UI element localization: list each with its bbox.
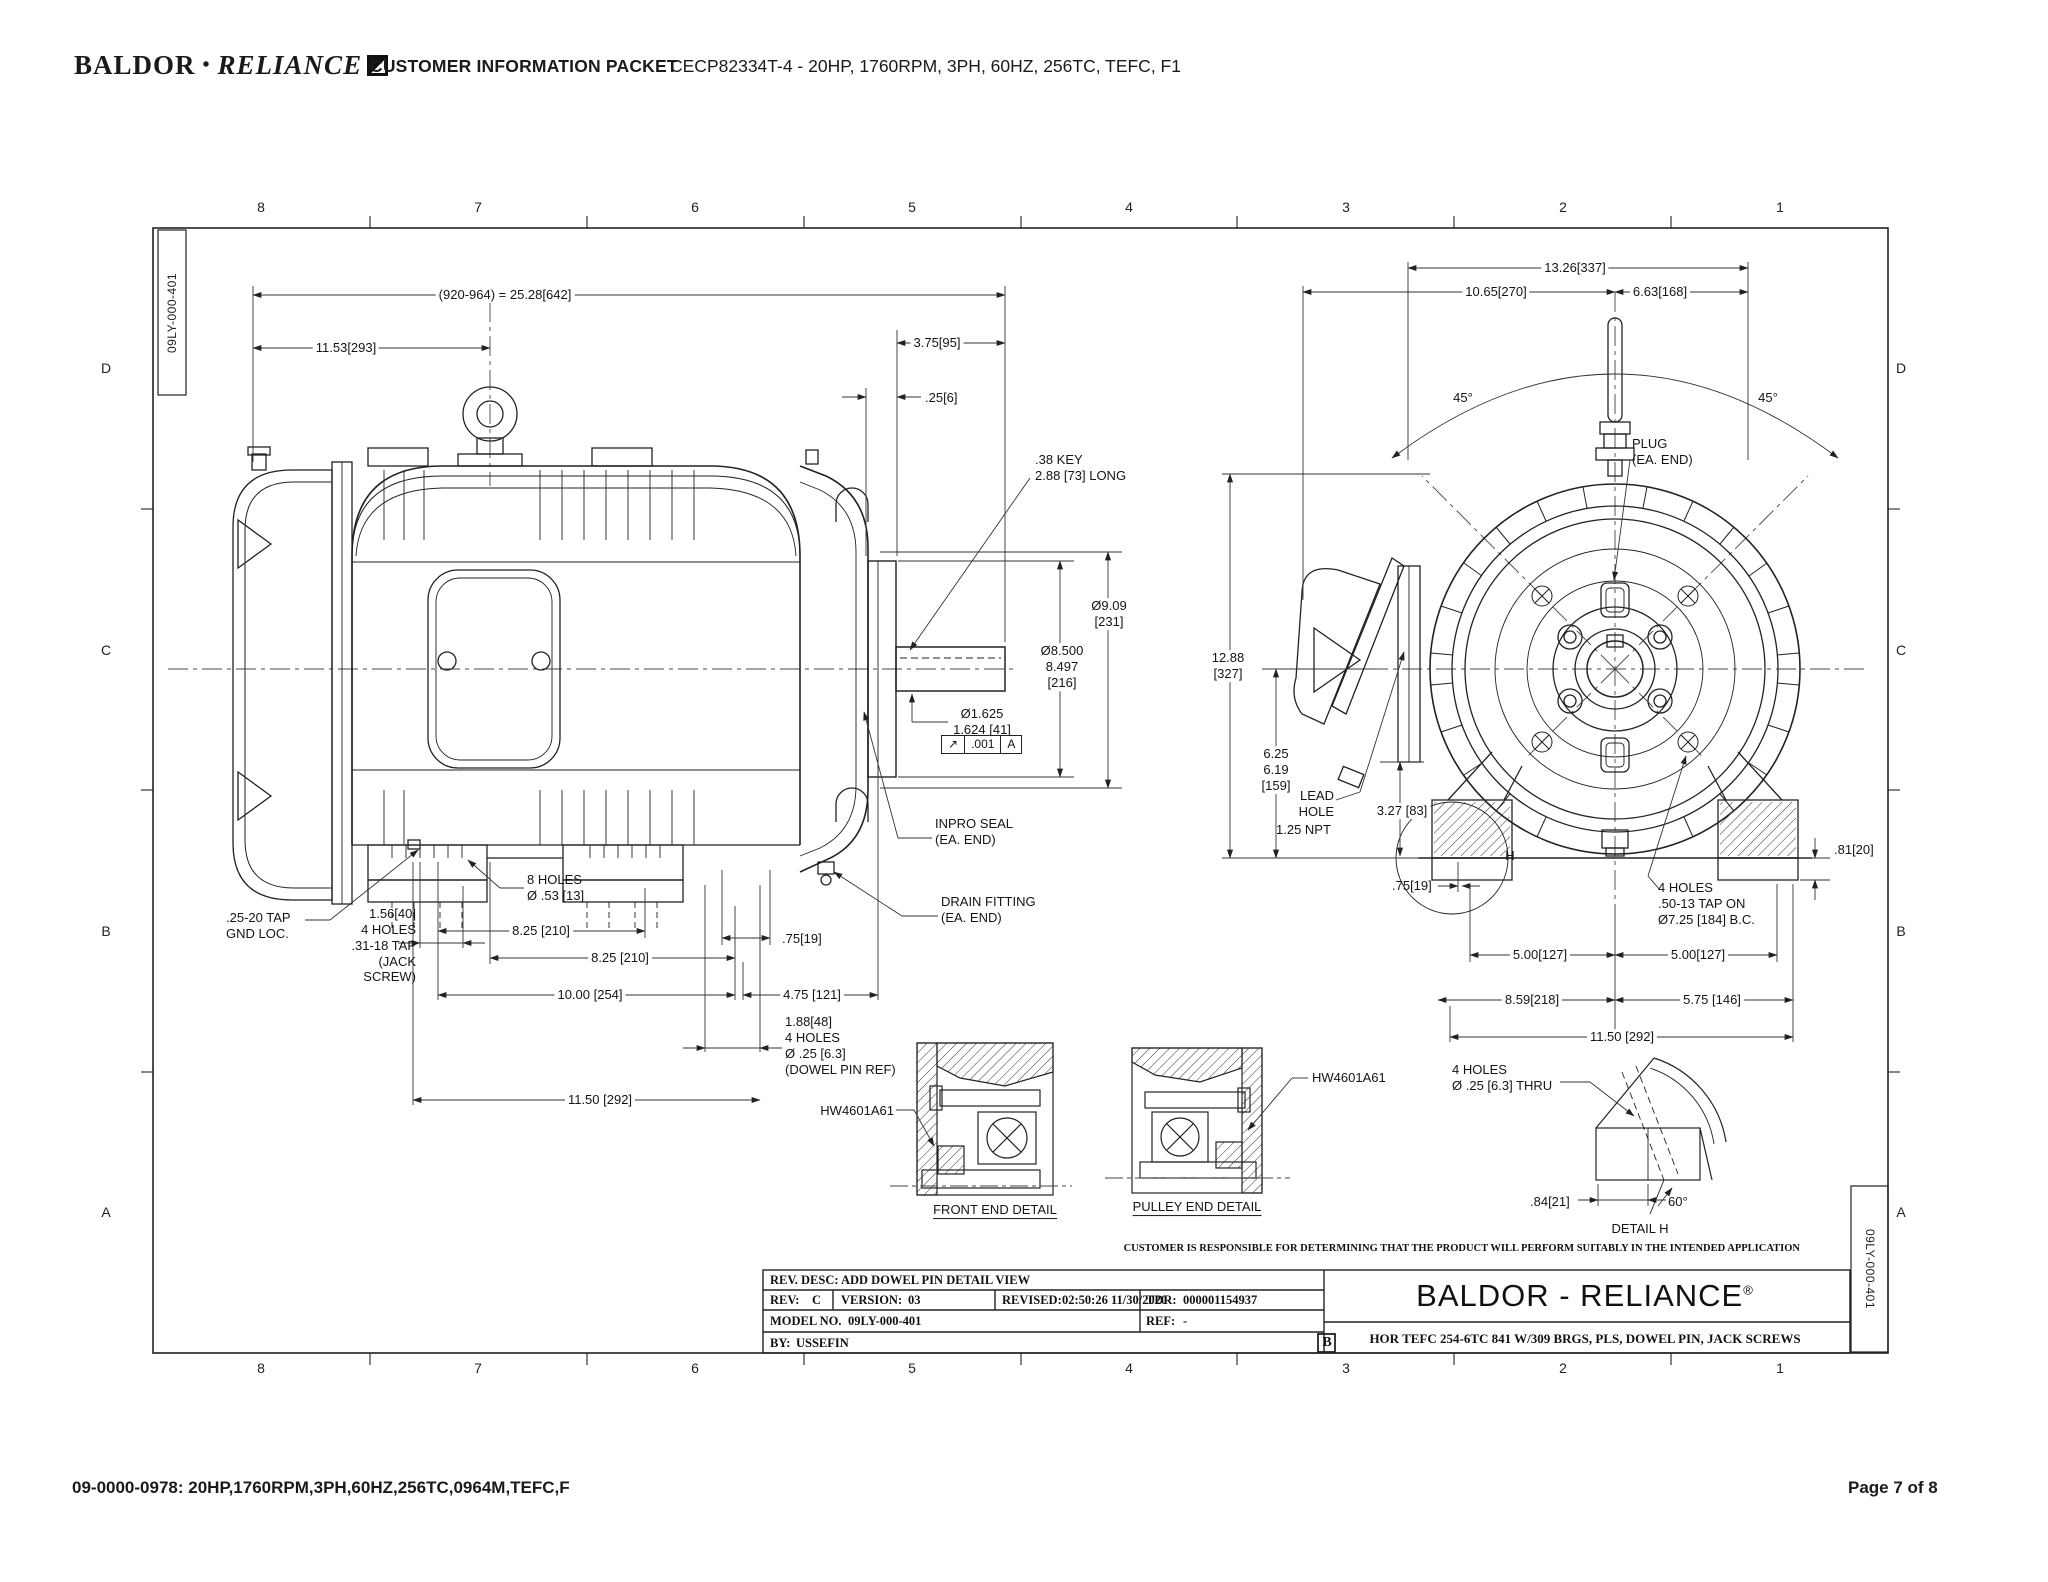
eight-holes-note: 8 HOLES Ø .53 [13] — [527, 872, 584, 904]
sheet-border — [141, 216, 1900, 1365]
motor-end-view — [1294, 292, 1868, 914]
rev-value: C — [812, 1293, 821, 1308]
customer-information-packet-page: BALDOR•RELIANCE CUSTOMER INFORMATION PAC… — [0, 0, 2048, 1582]
title-block-brand: BALDOR - RELIANCE® — [1324, 1278, 1846, 1314]
jack-screw-note: 1.56[40] 4 HOLES .31-18 TAP (JACK SCREW) — [330, 906, 416, 985]
gnd-tap-note: .25-20 TAP GND LOC. — [226, 910, 291, 942]
motor-side-view — [168, 302, 1015, 928]
title-block-description: HOR TEFC 254-6TC 841 W/309 BRGS, PLS, DO… — [1324, 1331, 1846, 1347]
dim-overall-length: (920-964) = 25.28[642] — [436, 287, 575, 303]
footer-catalog-line: 09-0000-0978: 20HP,1760RPM,3PH,60HZ,256T… — [72, 1478, 570, 1498]
dim-12-88: 12.88 [327] — [1209, 650, 1248, 682]
dim-dia-9-09: Ø9.09 [231] — [1088, 598, 1129, 630]
dim-8-59: 8.59[218] — [1502, 992, 1562, 1008]
dim-6-25: 6.25 6.19 [159] — [1259, 746, 1294, 794]
zone-top-7: 7 — [474, 199, 482, 215]
zone-left-b: B — [101, 923, 110, 939]
version-value: 03 — [908, 1293, 921, 1308]
dim-dia-1-625: Ø1.625 1.624 [41] — [950, 706, 1014, 738]
tdr-label: TDR: — [1146, 1293, 1177, 1308]
zone-bottom-1: 1 — [1776, 1360, 1784, 1376]
gdt-symbol: ↗ — [941, 735, 965, 754]
zone-top-3: 3 — [1342, 199, 1350, 215]
zone-bottom-4: 4 — [1125, 1360, 1133, 1376]
dim-10-00: 10.00 [254] — [554, 987, 625, 1003]
registered-mark: ® — [1743, 1283, 1754, 1298]
gdt-runout-frame: ↗.001A — [941, 735, 1022, 754]
rev-desc: REV. DESC: ADD DOWEL PIN DETAIL VIEW — [770, 1273, 1030, 1288]
zone-left-a: A — [101, 1204, 110, 1220]
key-note: .38 KEY 2.88 [73] LONG — [1035, 452, 1126, 484]
npt-note: 1.25 NPT — [1276, 822, 1331, 838]
hw-part-right: HW4601A61 — [1312, 1070, 1386, 1086]
zone-top-2: 2 — [1559, 199, 1567, 215]
disclaimer: CUSTOMER IS RESPONSIBLE FOR DETERMINING … — [1056, 1243, 1800, 1254]
dim-0-75-right: .75[19] — [1392, 878, 1432, 894]
thru-holes-note: 4 HOLES Ø .25 [6.3] THRU — [1452, 1062, 1552, 1094]
zone-right-c: C — [1896, 642, 1906, 658]
dim-dia-8-500: Ø8.500 8.497 [216] — [1038, 643, 1087, 691]
dim-10-65: 10.65[270] — [1462, 284, 1529, 300]
dim-4-75: 4.75 [121] — [780, 987, 844, 1003]
zone-left-c: C — [101, 642, 111, 658]
dim-5-00-a: 5.00[127] — [1510, 947, 1570, 963]
doc-number-top-left: 09LY-000-401 — [165, 273, 179, 353]
dim-11-50-right: 11.50 [292] — [1587, 1029, 1657, 1045]
dim-5-75: 5.75 [146] — [1680, 992, 1744, 1008]
zone-top-4: 4 — [1125, 199, 1133, 215]
angle-45-left: 45° — [1450, 390, 1476, 406]
zone-top-5: 5 — [908, 199, 916, 215]
zone-bottom-7: 7 — [474, 1360, 482, 1376]
front-end-detail-title: FRONT END DETAIL — [933, 1202, 1057, 1218]
dim-13-26: 13.26[337] — [1541, 260, 1608, 276]
dim-3-75: 3.75[95] — [911, 335, 964, 351]
lead-hole-note: LEAD HOLE — [1290, 788, 1334, 820]
angle-60: 60° — [1668, 1194, 1688, 1210]
rev-label: REV: — [770, 1293, 799, 1308]
dim-5-00-b: 5.00[127] — [1668, 947, 1728, 963]
zone-bottom-2: 2 — [1559, 1360, 1567, 1376]
dim-3-27: 3.27 [83] — [1374, 803, 1431, 819]
zone-right-d: D — [1896, 360, 1906, 376]
side-view-dimensions — [253, 286, 1430, 1105]
drain-fitting-note: DRAIN FITTING (EA. END) — [941, 894, 1036, 926]
zone-left-d: D — [101, 360, 111, 376]
footer-page-number: Page 7 of 8 — [1848, 1478, 1938, 1498]
by-value: USSEFIN — [796, 1336, 849, 1351]
pulley-end-detail-view — [1105, 1048, 1308, 1193]
dim-8-25-b: 8.25 [210] — [588, 950, 652, 966]
inpro-seal-note: INPRO SEAL (EA. END) — [935, 816, 1013, 848]
version-label: VERSION: — [841, 1293, 902, 1308]
ref-label: REF: — [1146, 1314, 1175, 1329]
by-label: BY: — [770, 1336, 790, 1351]
dim-11-50-left: 11.50 [292] — [565, 1092, 635, 1108]
angle-45-right: 45° — [1755, 390, 1781, 406]
hw-part-left: HW4601A61 — [818, 1103, 894, 1119]
plug-note: PLUG (EA. END) — [1632, 436, 1693, 468]
tdr-value: 000001154937 — [1183, 1293, 1257, 1308]
zone-top-1: 1 — [1776, 199, 1784, 215]
dim-8-25-a: 8.25 [210] — [509, 923, 573, 939]
zone-bottom-5: 5 — [908, 1360, 916, 1376]
zone-bottom-6: 6 — [691, 1360, 699, 1376]
detail-h-view — [1560, 1058, 1726, 1214]
model-value: 09LY-000-401 — [848, 1314, 921, 1329]
detail-h-title: DETAIL H — [1611, 1221, 1668, 1237]
dowel-pin-note: 1.88[48] 4 HOLES Ø .25 [6.3] (DOWEL PIN … — [785, 1014, 896, 1077]
revised-label: REVISED: — [1002, 1293, 1062, 1308]
dim-6-63: 6.63[168] — [1630, 284, 1690, 300]
pulley-end-detail-title: PULLEY END DETAIL — [1133, 1199, 1262, 1215]
dim-0-81: .81[20] — [1834, 842, 1874, 858]
detail-h-letter: H — [1505, 848, 1514, 864]
tap-holes-note: 4 HOLES .50-13 TAP ON Ø7.25 [184] B.C. — [1658, 880, 1755, 928]
dim-0-75-left: .75[19] — [782, 931, 822, 947]
dim-0-84: .84[21] — [1530, 1194, 1570, 1210]
dim-11-53: 11.53[293] — [313, 340, 379, 356]
model-label: MODEL NO. — [770, 1314, 842, 1329]
doc-number-bottom-right: 09LY-000-401 — [1863, 1229, 1877, 1309]
zone-right-b: B — [1896, 923, 1905, 939]
zone-bottom-3: 3 — [1342, 1360, 1350, 1376]
ref-value: - — [1183, 1314, 1187, 1329]
zone-top-8: 8 — [257, 199, 265, 215]
front-end-detail-view — [890, 1043, 1072, 1195]
dim-0-25: .25[6] — [925, 390, 958, 406]
zone-top-6: 6 — [691, 199, 699, 215]
zone-right-a: A — [1896, 1204, 1905, 1220]
zone-bottom-8: 8 — [257, 1360, 265, 1376]
gdt-tolerance: .001 — [965, 735, 1001, 754]
gdt-datum: A — [1001, 735, 1022, 754]
